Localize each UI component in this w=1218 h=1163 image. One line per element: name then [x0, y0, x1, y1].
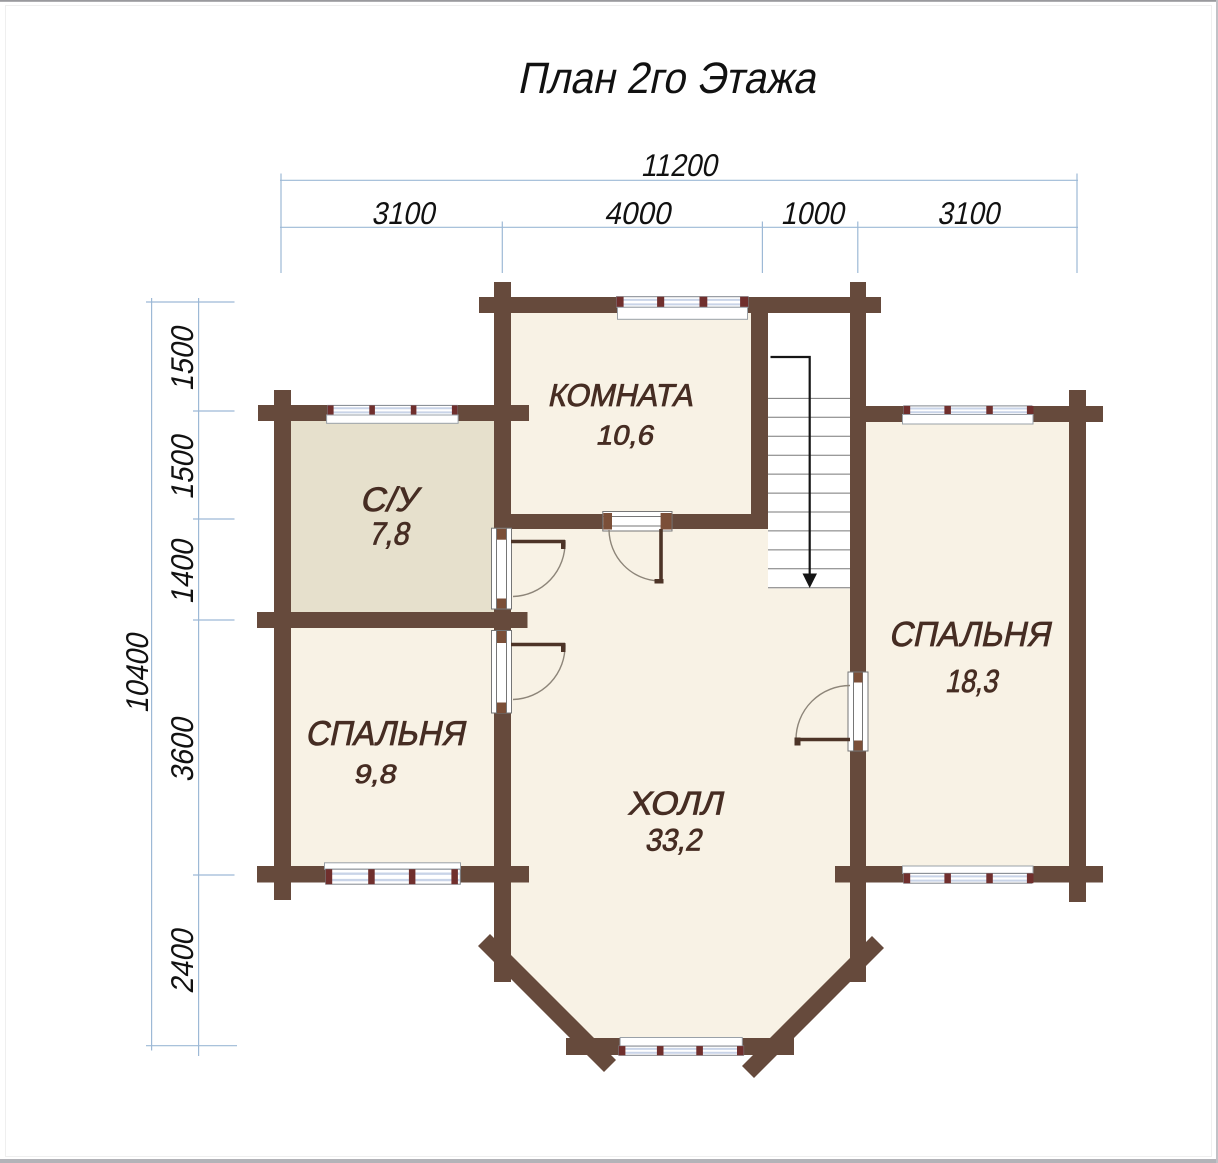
svg-text:33,2: 33,2 — [643, 823, 706, 858]
svg-text:3100: 3100 — [370, 195, 441, 231]
svg-text:План 2го Этажа: План 2го Этажа — [515, 54, 824, 102]
svg-text:СПАЛЬНЯ: СПАЛЬНЯ — [303, 714, 470, 753]
svg-text:11200: 11200 — [639, 147, 723, 183]
svg-text:1400: 1400 — [164, 534, 200, 606]
svg-text:СПАЛЬНЯ: СПАЛЬНЯ — [887, 615, 1056, 654]
svg-text:4000: 4000 — [603, 195, 677, 231]
svg-text:ХОЛЛ: ХОЛЛ — [626, 786, 729, 823]
svg-text:2400: 2400 — [164, 924, 200, 996]
svg-text:7,8: 7,8 — [367, 516, 415, 552]
svg-text:10,6: 10,6 — [594, 420, 658, 451]
svg-text:1500: 1500 — [164, 430, 200, 502]
svg-text:КОМНАТА: КОМНАТА — [546, 377, 699, 413]
svg-text:9,8: 9,8 — [352, 759, 400, 789]
svg-text:3600: 3600 — [164, 712, 200, 784]
svg-text:1500: 1500 — [164, 321, 200, 393]
svg-text:18,3: 18,3 — [943, 663, 1003, 699]
svg-text:1000: 1000 — [779, 195, 850, 231]
svg-text:С/У: С/У — [358, 481, 423, 519]
svg-text:3100: 3100 — [936, 195, 1006, 231]
svg-text:10400: 10400 — [119, 628, 155, 715]
